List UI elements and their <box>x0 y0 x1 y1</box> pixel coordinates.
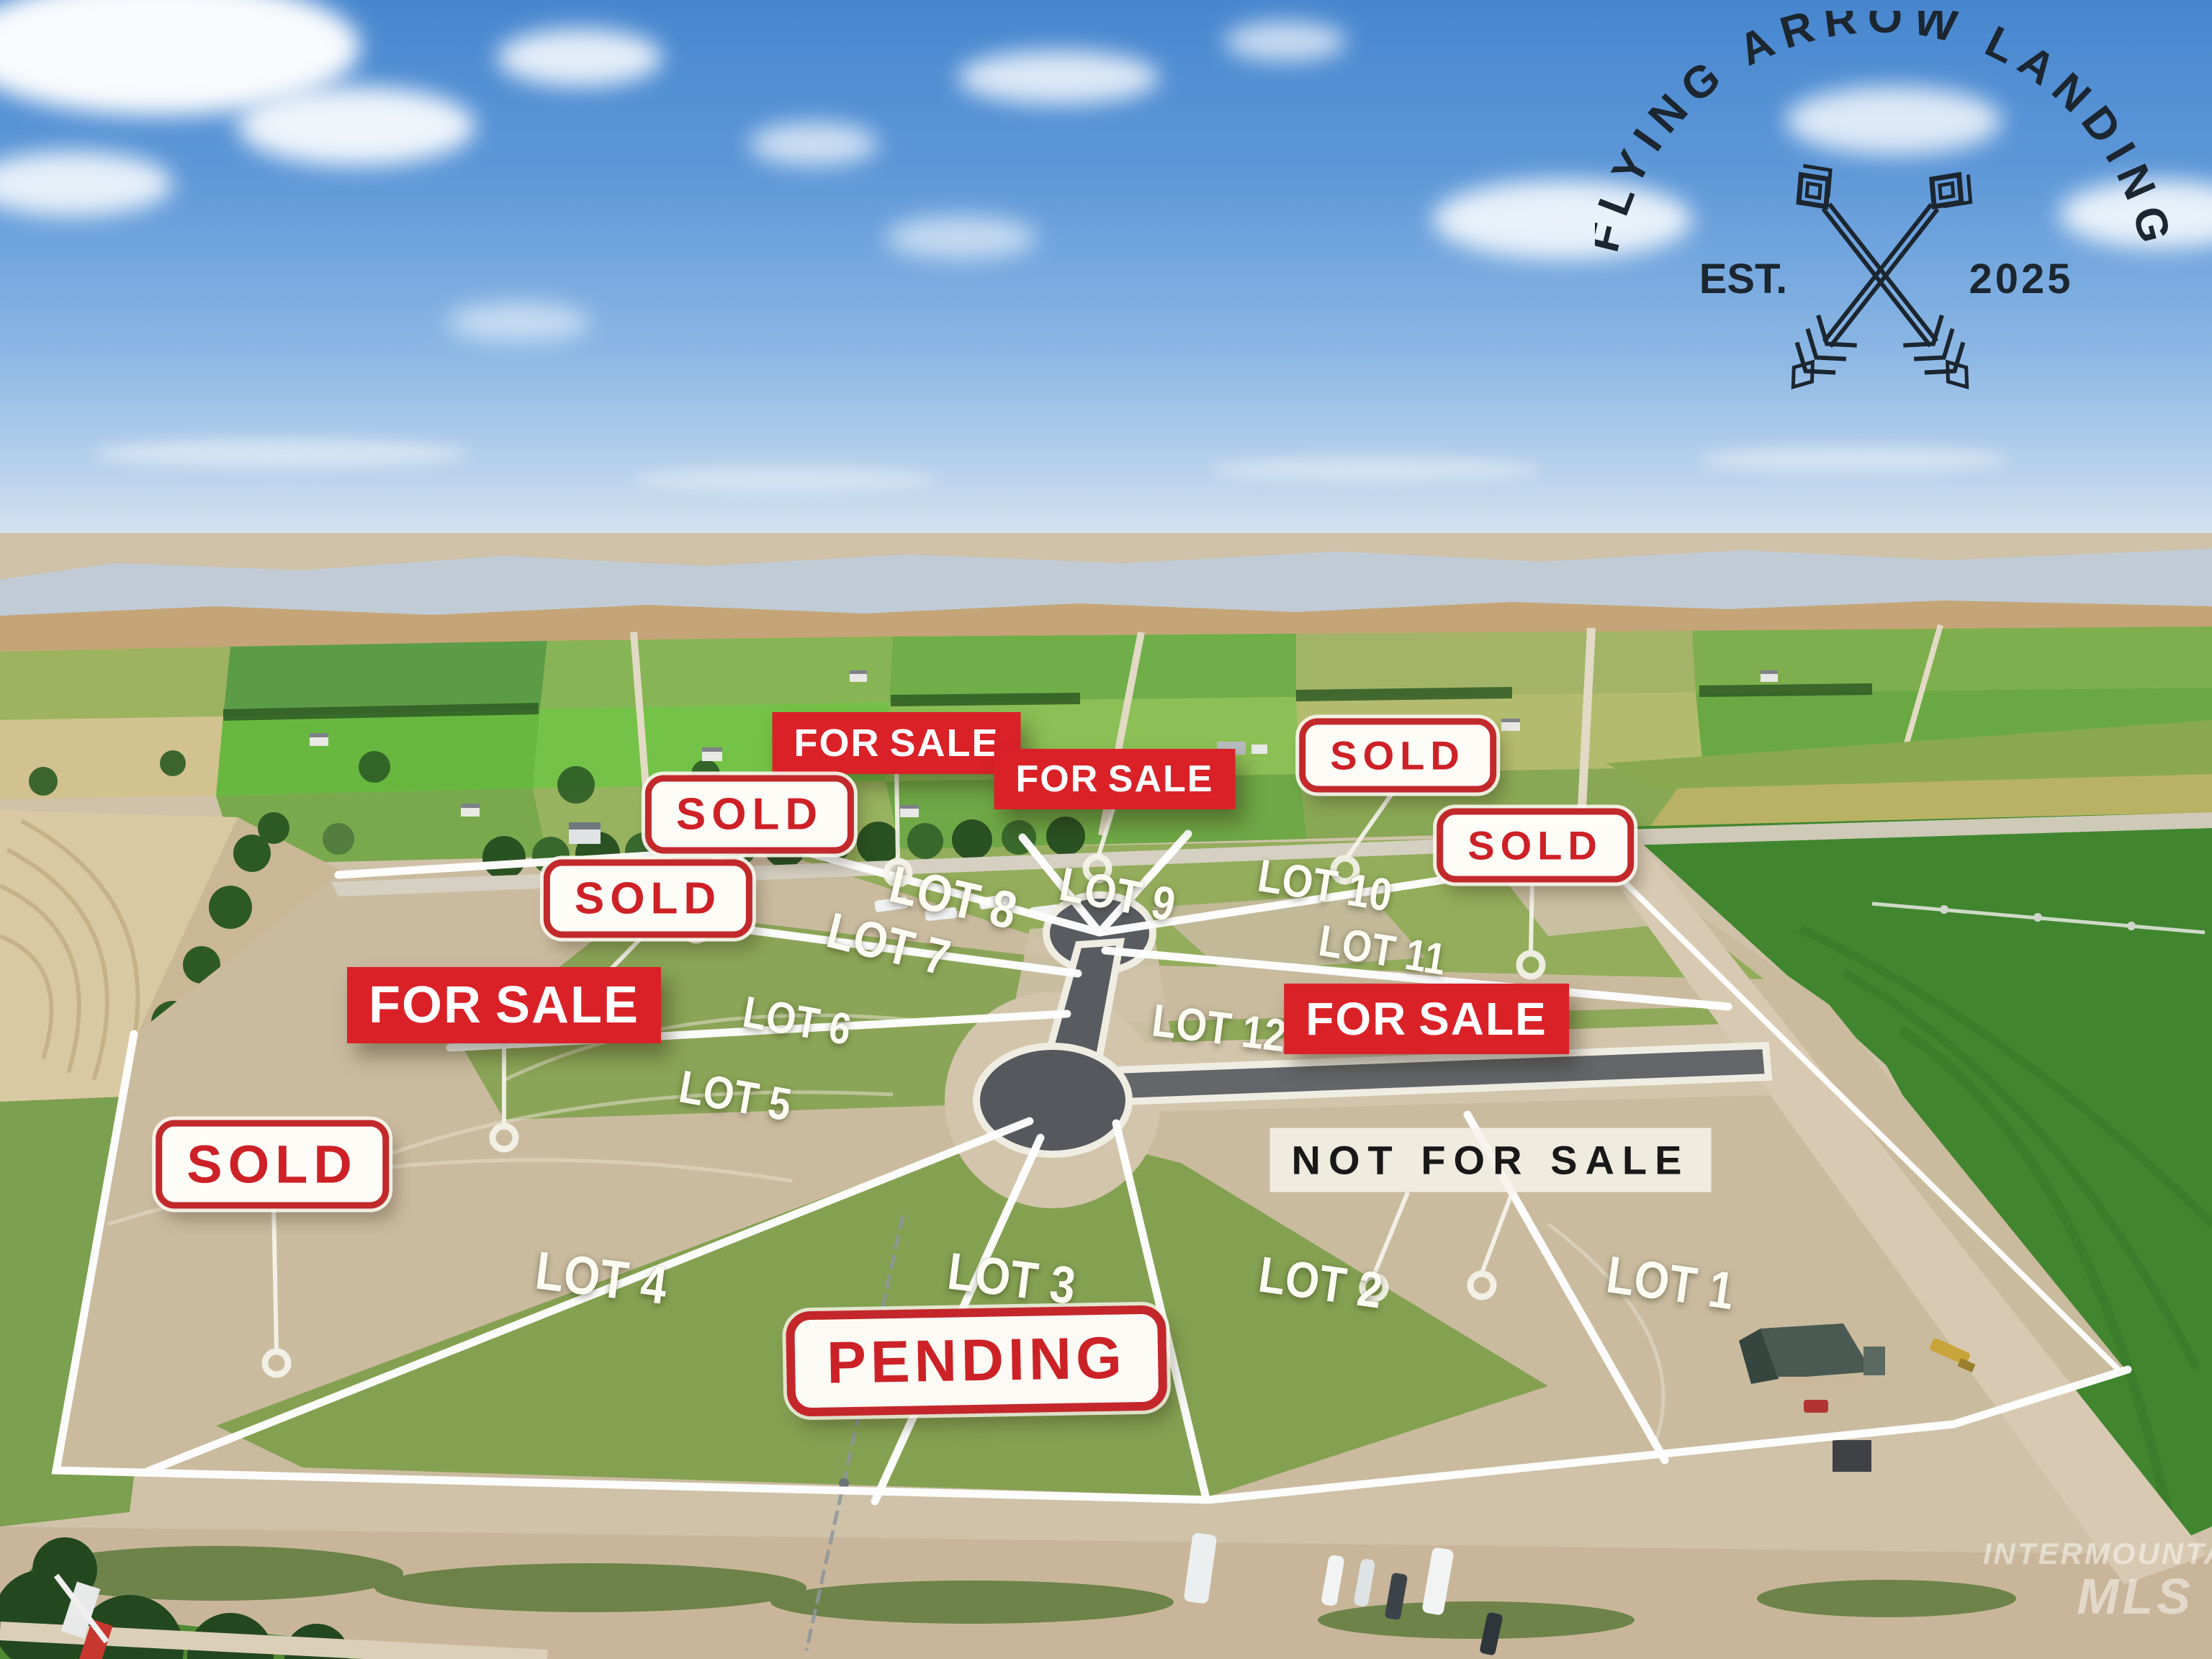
logo-arc-text: FLYING ARROW LANDING <box>1595 11 2171 256</box>
badge-for-sale-lot5: FOR SALE <box>347 967 661 1043</box>
brand-logo: FLYING ARROW LANDING EST. 2025 <box>1595 11 2171 421</box>
lot1-shed <box>1833 1440 1871 1472</box>
badge-not-for-sale: NOT FOR SALE <box>1270 1128 1712 1192</box>
mls-watermark-line2: MLS <box>1983 1570 2194 1624</box>
farmstead-house <box>569 822 601 844</box>
badge-for-sale-lot8: FOR SALE <box>772 712 1020 774</box>
logo-est-label: EST. <box>1699 256 1788 302</box>
mls-watermark-line1: INTERMOUNTAIN <box>1983 1538 2212 1570</box>
red-truck <box>1804 1400 1828 1413</box>
badge-sold-lot7: SOLD <box>645 775 854 854</box>
badge-sold-lot4: SOLD <box>156 1120 389 1209</box>
badge-for-sale-lot12: FOR SALE <box>1284 984 1569 1054</box>
badge-sold-lot11: SOLD <box>1437 809 1634 883</box>
badge-sold-lot10: SOLD <box>1299 719 1496 793</box>
badge-pending: PENDING <box>786 1305 1167 1416</box>
logo-year: 2025 <box>1969 256 2073 302</box>
badge-sold-lot6: SOLD <box>544 860 752 938</box>
listing-photo: LOT 1 LOT 2 LOT 3 LOT 4 LOT 5 LOT 6 LOT … <box>0 0 2212 1659</box>
mls-watermark: INTERMOUNTAIN MLS <box>1983 1538 2212 1623</box>
badge-for-sale-lot9: FOR SALE <box>994 749 1236 809</box>
